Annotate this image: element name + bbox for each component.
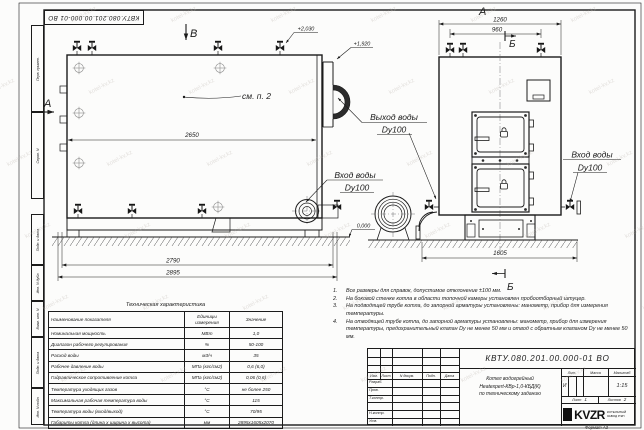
- row-unit: °С: [185, 384, 230, 395]
- dim-side-length: 2650: [184, 132, 199, 139]
- table-row: Температура уходящих газов°Сне более 250: [49, 384, 282, 395]
- row-name: Диапазон рабочего регулирования: [49, 339, 185, 350]
- note-number: 2.: [333, 296, 346, 304]
- frame-box-label: Справ. N: [36, 148, 40, 163]
- inverted-designation-box: КВТУ.080.201.00.000-01 ВО: [44, 10, 144, 25]
- row-value: 0,6 (6,0): [230, 362, 282, 373]
- stamp-row-nkontr: Н.контр.: [369, 411, 392, 418]
- sheet-value: 1: [584, 397, 587, 402]
- stamp-logo-cell: KVZR КОТЕЛЬНЫЙ ЗАВОД РЭП: [561, 403, 636, 426]
- row-unit: МВт: [185, 328, 230, 339]
- stamp-row-utv: Утв.: [369, 419, 392, 426]
- section-label-b-top: Б: [509, 39, 516, 50]
- row-unit: МПа (кгс/см2): [185, 362, 230, 373]
- stamp-sheet-cell: Лист 1: [561, 396, 598, 403]
- frame-box-label: Инв. N подл.: [36, 396, 40, 417]
- stamp-lit-header: Лит.: [561, 369, 583, 376]
- frame-box-label: Инв. N дубл.: [36, 273, 40, 294]
- elevation-duct: +1,920: [354, 42, 371, 48]
- note-item: 4.На отводящей трубе котла, до запорной …: [333, 319, 636, 342]
- note-item: 3.На подводящей трубе котла, до запорной…: [333, 303, 636, 318]
- row-unit: %: [185, 339, 230, 350]
- stamp-col-list: Лист: [380, 372, 392, 379]
- stamp-sheets-cell: Листов 2: [598, 396, 636, 403]
- frame-box-sprav-n: Справ. N: [31, 112, 44, 199]
- note-text: На подводящей трубе котла, до запорной а…: [346, 303, 636, 318]
- frame-box-label: Подп. и дата: [36, 228, 40, 251]
- tech-table: Наименование показателя Единицы измерени…: [48, 311, 283, 429]
- doc-title-line1: Котел водогрейный: [459, 376, 561, 384]
- stamp-designation: КВТУ.080.201.00.000-01 ВО: [459, 349, 636, 369]
- table-row: Номинальная мощностьМВт1,0: [49, 328, 282, 339]
- tech-table-title: Техническая характеристика: [48, 302, 283, 308]
- notes-list: 1.Все размеры для справок, допустимое от…: [333, 288, 636, 342]
- stamp-col-dokum: N докум.: [392, 372, 422, 379]
- row-value: 35: [230, 350, 282, 361]
- row-unit: мм: [185, 418, 230, 428]
- view-label-a-top: А: [478, 6, 486, 18]
- tech-table-header: Наименование показателя Единицы измерени…: [49, 312, 282, 328]
- tech-header-unit: Единицы измерения: [185, 312, 230, 328]
- stamp-massa-header: Масса: [583, 369, 608, 376]
- dim-front-base: 1605: [493, 250, 507, 257]
- row-unit: м3/ч: [185, 350, 230, 361]
- stamp-row-tkontr: Т.контр.: [369, 396, 392, 403]
- row-unit: МПа (кгс/см2): [185, 373, 230, 384]
- frame-box-podp-data-1: Подп. и дата: [31, 214, 44, 265]
- drawing-sheet: 2650 2790 2895 1260 960 1605 +2,030 +1,9…: [0, 0, 644, 430]
- frame-box-perv-primen: Перв. примен.: [31, 25, 44, 112]
- section-label-v: В: [190, 28, 197, 40]
- flue-collar: [371, 192, 415, 240]
- row-value: 0,06 (0,6): [230, 373, 282, 384]
- stamp-scale-value: 1:15: [608, 376, 636, 396]
- stamp-row-razrab: Разраб.: [369, 380, 392, 387]
- callout-see-note: см. п. 2: [242, 91, 271, 101]
- tech-header-name: Наименование показателя: [49, 312, 185, 328]
- doc-title-line3: по техническому заданию: [459, 391, 561, 399]
- kvzr-logo-caption: КОТЕЛЬНЫЙ ЗАВОД РЭП: [607, 411, 634, 418]
- note-number: 1.: [333, 288, 346, 296]
- dim-front-valves: 960: [492, 27, 503, 34]
- frame-box-label: Подп. и дата: [36, 351, 40, 374]
- elevation-ground: 0,000: [357, 224, 371, 230]
- callout-inlet-side-1: Вход воды: [334, 170, 376, 180]
- stamp-col-podp: Подп.: [422, 372, 440, 379]
- row-name: Расход воды: [49, 350, 185, 361]
- stamp-row-prov: Пров.: [369, 388, 392, 395]
- format-label: Формат А3: [558, 425, 635, 430]
- row-value: 70/95: [230, 406, 282, 417]
- row-value: не более 250: [230, 384, 282, 395]
- note-item: 1.Все размеры для справок, допустимое от…: [333, 288, 636, 296]
- sheets-value: 2: [624, 397, 627, 402]
- dim-side-base: 2790: [165, 258, 180, 265]
- dim-side-overall: 2895: [165, 270, 180, 277]
- row-name: Гидравлическое сопротивление котла: [49, 373, 185, 384]
- row-name: Температура уходящих газов: [49, 384, 185, 395]
- callout-inlet-front-2: Dy100: [578, 163, 603, 173]
- callout-inlet-front-1: Вход воды: [571, 150, 613, 160]
- row-unit: °С: [185, 395, 230, 406]
- table-row: Диапазон рабочего регулирования%50-100: [49, 339, 282, 350]
- sheet-label: Лист: [572, 398, 581, 402]
- callout-outlet-1: Выход воды: [370, 112, 419, 122]
- row-name: Габариты котла (длина х ширина х высота): [49, 418, 185, 428]
- table-row: Температура воды (вход/выход)°С70/95: [49, 406, 282, 417]
- row-value: 50-100: [230, 339, 282, 350]
- kvzr-logo-text: KVZR: [574, 408, 605, 422]
- frame-box-label: Взам. инв. N: [36, 309, 40, 330]
- table-row: Рабочее давление водыМПа (кгс/см2)0,6 (6…: [49, 362, 282, 373]
- title-block: Изм. Лист N докум. Подп. Дата Разраб. Пр…: [367, 348, 635, 425]
- inverted-designation-text: КВТУ.080.201.00.000-01 ВО: [48, 14, 139, 21]
- table-row: Расход водым3/ч35: [49, 350, 282, 361]
- frame-box-inv-dubl: Инв. N дубл.: [31, 265, 44, 301]
- kvzr-logo-icon: [563, 408, 572, 421]
- frame-box-label: Перв. примен.: [36, 57, 40, 81]
- elevation-top: +2,030: [298, 27, 315, 33]
- table-row: Гидравлическое сопротивление котлаМПа (к…: [49, 373, 282, 384]
- stamp-col-data: Дата: [440, 372, 459, 379]
- table-row: Габариты котла (длина х ширина х высота)…: [49, 418, 282, 428]
- note-text: На отводящей трубе котла, до запорной ар…: [346, 319, 636, 342]
- note-text: Все размеры для справок, допустимое откл…: [346, 288, 501, 296]
- doc-title-line2: Heatexpert-КВр-1,0-КБД(К): [459, 384, 561, 392]
- note-number: 3.: [333, 303, 346, 318]
- row-name: Максимальная рабочая температура воды: [49, 395, 185, 406]
- sheets-label: Листов: [608, 398, 621, 402]
- stamp-scale-header: Масштаб: [608, 369, 636, 376]
- stamp-col-izm: Изм.: [368, 372, 380, 379]
- frame-box-inv-podl: Инв. N подл.: [31, 388, 44, 425]
- row-name: Номинальная мощность: [49, 328, 185, 339]
- stamp-lit-value: И: [561, 376, 568, 396]
- dim-front-width: 1260: [493, 17, 507, 24]
- section-label-a-side: А: [43, 98, 51, 110]
- row-value: 1,0: [230, 328, 282, 339]
- callout-outlet-2: Dy100: [382, 125, 407, 135]
- note-number: 4.: [333, 319, 346, 342]
- callout-inlet-side-2: Dy100: [345, 183, 370, 193]
- table-row: Максимальная рабочая температура воды°С1…: [49, 395, 282, 406]
- tech-header-value: Значение: [230, 312, 282, 328]
- stamp-doc-title: Котел водогрейный Heatexpert-КВр-1,0-КБД…: [459, 369, 561, 426]
- row-value: 2895х1605х2070: [230, 418, 282, 428]
- frame-box-podp-data-2: Подп. и дата: [31, 337, 44, 388]
- row-name: Рабочее давление воды: [49, 362, 185, 373]
- row-unit: °С: [185, 406, 230, 417]
- row-value: 115: [230, 395, 282, 406]
- row-name: Температура воды (вход/выход): [49, 406, 185, 417]
- frame-box-vzam-inv: Взам. инв. N: [31, 301, 44, 337]
- drawing-texts: 2650 2790 2895 1260 960 1605 +2,030 +1,9…: [43, 6, 613, 293]
